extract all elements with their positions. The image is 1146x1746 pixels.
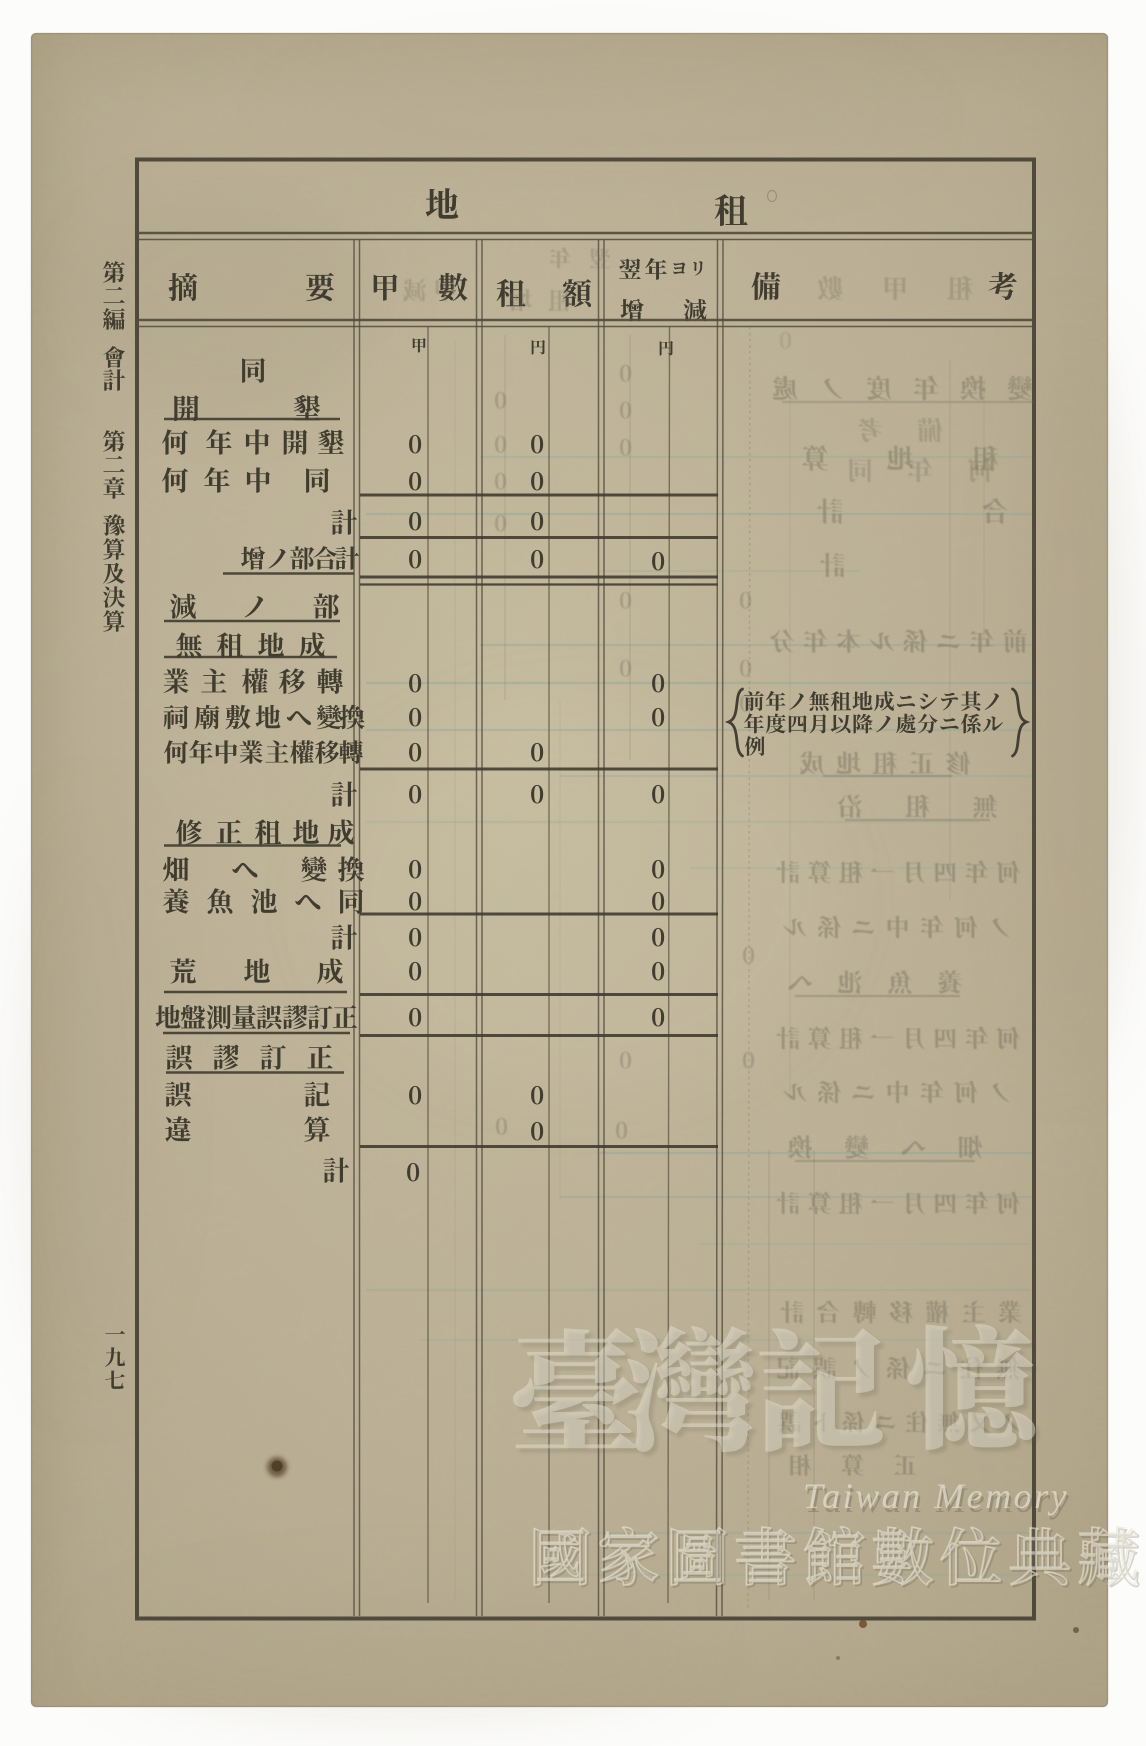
svg-text:Taiwan Memory: Taiwan Memory — [803, 1476, 1069, 1516]
